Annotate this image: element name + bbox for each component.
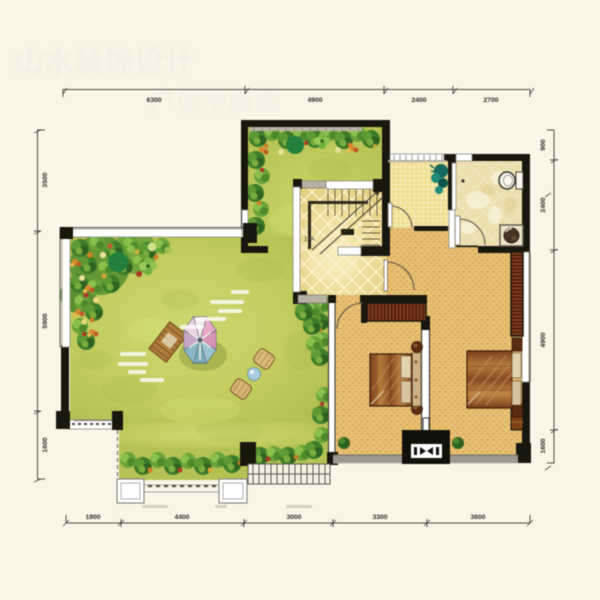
svg-text:3000: 3000 [286, 514, 301, 521]
svg-text:15A: 15A [304, 237, 315, 243]
svg-text:5900: 5900 [42, 313, 49, 328]
svg-text:4900: 4900 [307, 97, 322, 104]
svg-text:户型平面图: 户型平面图 [150, 86, 280, 116]
svg-text:4900: 4900 [540, 332, 547, 347]
svg-text:3600: 3600 [470, 514, 485, 521]
svg-text:2700: 2700 [483, 97, 498, 104]
svg-text:1600: 1600 [42, 437, 49, 452]
svg-text:3300: 3300 [372, 514, 387, 521]
svg-text:3500: 3500 [42, 172, 49, 187]
svg-text:4400: 4400 [174, 514, 189, 521]
svg-text:1900: 1900 [85, 514, 100, 521]
svg-text:6300: 6300 [146, 97, 161, 104]
svg-text:2400: 2400 [411, 97, 426, 104]
svg-text:2400: 2400 [540, 197, 547, 212]
svg-text:1600: 1600 [540, 438, 547, 453]
svg-text:山水装饰设计: 山水装饰设计 [14, 46, 194, 79]
svg-text:900: 900 [540, 139, 547, 151]
